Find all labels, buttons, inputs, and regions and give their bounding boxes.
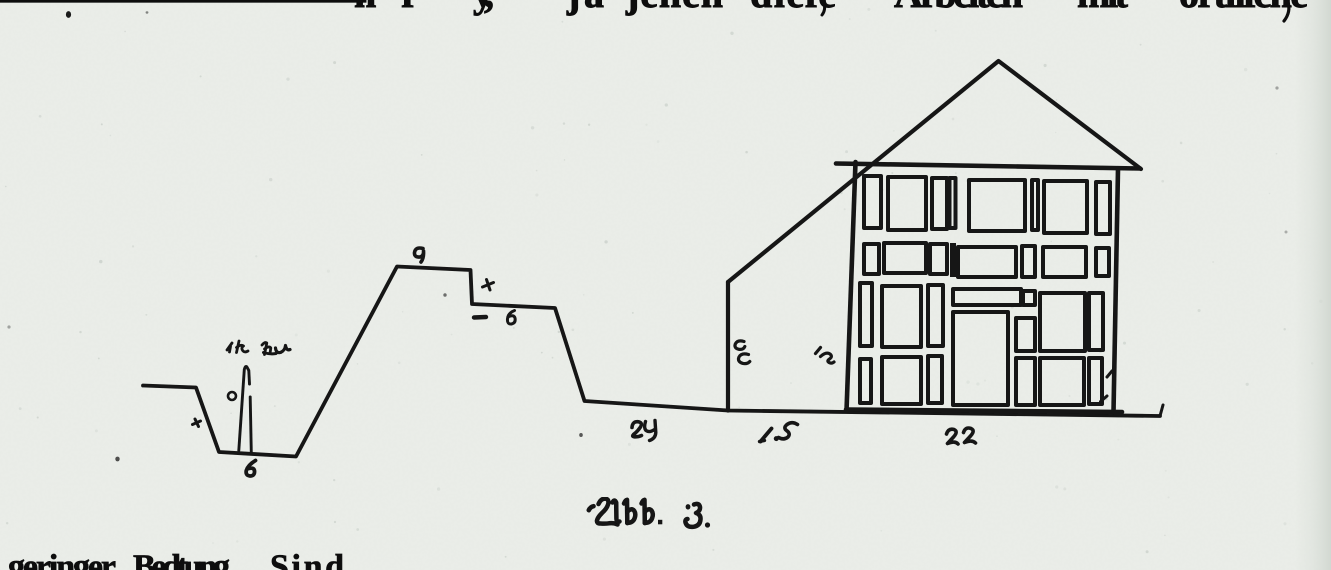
svg-text:Bedtung: Bedtung [133,549,230,570]
svg-text:geringer: geringer [8,549,116,570]
svg-text:y,: y, [473,0,494,16]
svg-text:ja: ja [566,0,604,16]
svg-text:mit: mit [1077,0,1129,16]
svg-text:n: n [354,0,376,16]
svg-text:Arbeiten: Arbeiten [894,0,1023,16]
svg-text:Sind: Sind [270,549,344,570]
svg-text:jenen: jenen [625,0,723,16]
svg-text:r: r [401,0,419,16]
